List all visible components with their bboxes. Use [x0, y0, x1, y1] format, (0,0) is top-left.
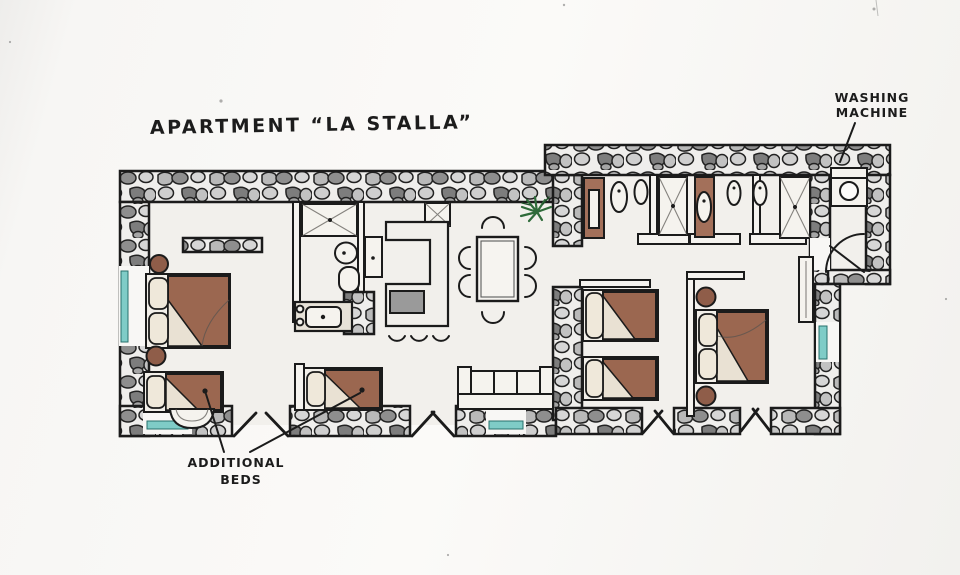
nightstand-3 — [697, 288, 716, 307]
wall-divider-top — [553, 175, 582, 246]
scan-scratch — [876, 0, 878, 16]
wall-bottom-4 — [556, 408, 642, 434]
bidet-icon — [339, 267, 359, 292]
window-bottom-sofa — [489, 421, 523, 429]
wall-stub-bed2 — [295, 364, 304, 410]
leader-dot-bed1 — [202, 388, 207, 393]
dining-table — [477, 237, 518, 301]
additional-beds-label-line1: ADDITIONAL — [188, 455, 285, 470]
wall-double-room-top — [687, 272, 744, 279]
washing-machine-label-line1: WASHING — [835, 90, 910, 105]
window-right-wall — [819, 326, 827, 359]
toilet-icon-2 — [611, 182, 627, 212]
wall-twin-room-top — [580, 280, 650, 287]
stove-icon — [390, 291, 424, 313]
sofa — [458, 367, 553, 409]
double-bed-left — [146, 274, 230, 348]
wardrobe-icon — [799, 257, 813, 322]
nightstand-1 — [150, 255, 168, 273]
scanned-floor-plan-page: APARTMENT “LA STALLA” WASHING MACHINE AD… — [0, 0, 960, 575]
door-panel-1 — [584, 178, 604, 238]
twin-bed-2 — [583, 357, 658, 400]
wall-shelf — [183, 238, 262, 252]
leader-dot-bed2 — [359, 387, 364, 392]
nightstand-4 — [697, 387, 716, 406]
double-bed-right — [696, 310, 768, 383]
bidet-icon-2 — [635, 180, 648, 204]
twin-bed-1 — [583, 290, 658, 341]
additional-bed-1 — [144, 372, 223, 412]
toilet-icon-3 — [728, 181, 741, 205]
wall-bottom-5 — [674, 408, 740, 434]
vanity-sink-icon — [295, 302, 352, 331]
wall-divider-bottom — [553, 287, 582, 420]
floor-plan-drawing: APARTMENT “LA STALLA” WASHING MACHINE AD… — [0, 0, 960, 575]
wall-laundry-bottom — [828, 270, 890, 284]
stall-partition-1 — [650, 175, 657, 235]
nightstand-2 — [147, 347, 166, 366]
washing-machine-icon — [831, 168, 867, 206]
wall-between-bedrooms — [687, 279, 694, 416]
plan-title: APARTMENT “LA STALLA” — [150, 111, 474, 139]
washing-machine-label-line2: MACHINE — [836, 105, 908, 120]
sofa-arm-left — [458, 367, 471, 394]
toilet-icon — [335, 243, 357, 264]
bidet-icon-3 — [754, 181, 767, 205]
wall-laundry-right — [866, 175, 890, 284]
toilet-stall-brown — [695, 177, 714, 237]
sofa-arm-right — [540, 367, 553, 394]
window-left-wall — [121, 271, 128, 342]
wall-top-left-wing — [120, 171, 555, 202]
wall-bottom-6 — [771, 408, 840, 434]
additional-beds-label-line2: BEDS — [220, 472, 261, 487]
additional-bed-2 — [304, 368, 382, 410]
